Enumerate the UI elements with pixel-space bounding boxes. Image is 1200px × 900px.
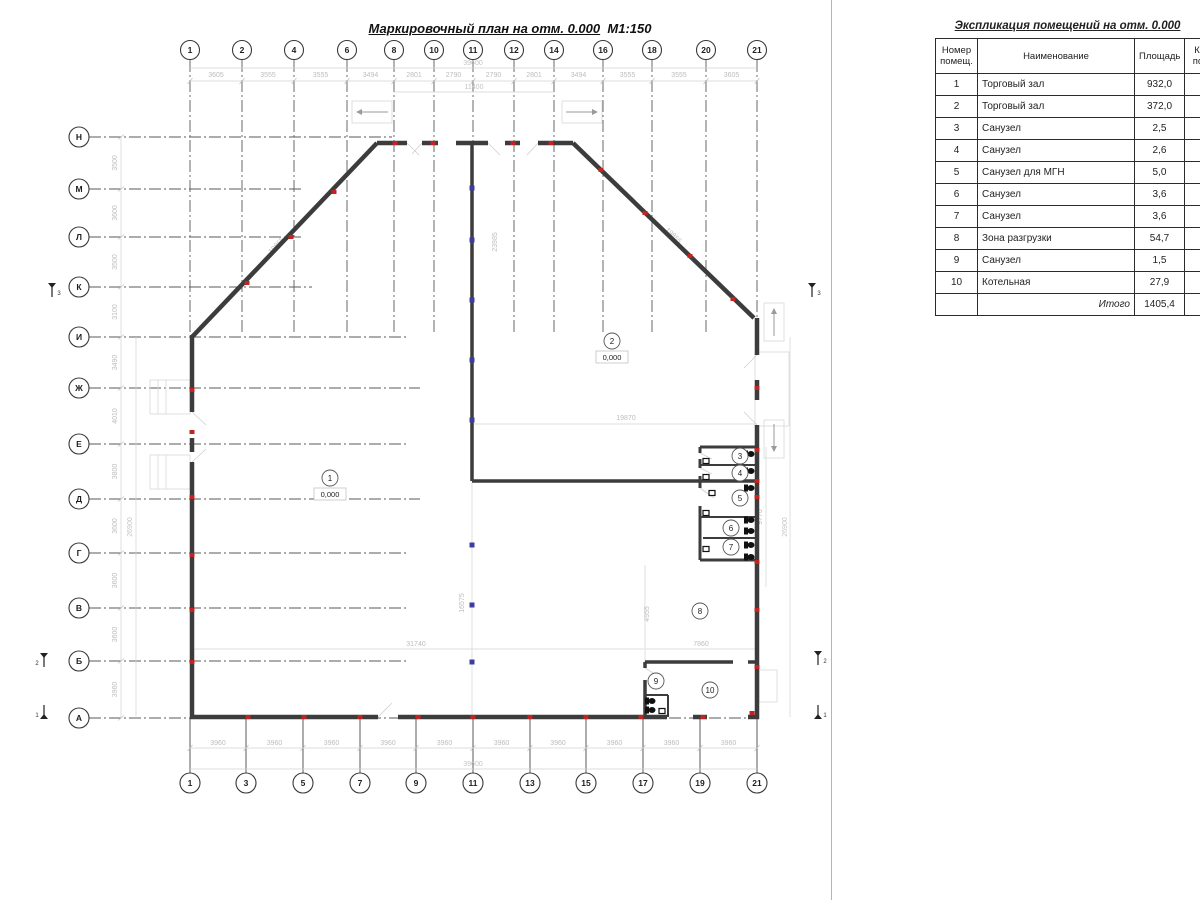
axis-label: 7 (358, 778, 363, 788)
wc-fixture (649, 698, 656, 704)
dimension-text: 3555 (620, 72, 636, 79)
axis-label: 13 (525, 778, 535, 788)
axis-label: 16 (598, 45, 608, 55)
room-number: 1 (328, 474, 333, 483)
total-value: 1405,4 (1135, 294, 1185, 316)
col-header-number: Номер помещ. (936, 39, 978, 74)
room-number-cell: 2 (936, 96, 978, 118)
column-marker (470, 238, 475, 243)
explication-table: Номер помещ. Наименование Площадь Кат. п… (935, 38, 1200, 316)
axis-label: 19 (695, 778, 705, 788)
dimension-text: 3800 (112, 464, 119, 480)
room-area-cell: 1,5 (1135, 250, 1185, 272)
wc-fixture (748, 485, 755, 491)
wc-fixture (744, 528, 748, 535)
col-header-category: Кат. пом. (1185, 39, 1200, 74)
red-marker (599, 168, 604, 172)
room-category-cell (1185, 250, 1200, 272)
section-mark-flag (40, 653, 48, 658)
door-swing (700, 488, 714, 498)
room-number-cell: 5 (936, 162, 978, 184)
total-empty-cell (936, 294, 978, 316)
axis-label: М (75, 184, 82, 194)
red-marker (688, 254, 693, 258)
door-swing (412, 143, 422, 154)
room-area-cell: 3,6 (1135, 206, 1185, 228)
red-marker (750, 711, 755, 715)
explication-title: Экспликация помещений на отм. 0.000 (935, 20, 1200, 32)
room-number-cell: 7 (936, 206, 978, 228)
axis-label: 17 (638, 778, 648, 788)
sink-fixture (659, 709, 665, 714)
axis-label: 15 (581, 778, 591, 788)
red-marker (393, 141, 398, 145)
room-name-cell: Котельная (978, 272, 1135, 294)
axis-label: Е (76, 439, 82, 449)
dimension-text: 3960 (324, 740, 340, 747)
room-area-cell: 932,0 (1135, 74, 1185, 96)
dimension-text: 3600 (112, 518, 119, 534)
room-area-cell: 3,6 (1135, 184, 1185, 206)
plan-title: Маркировочный план на отм. 0.000 М1:150 (320, 21, 700, 36)
room-number-cell: 9 (936, 250, 978, 272)
col-header-name: Наименование (978, 39, 1135, 74)
plan-scale-value: М1:150 (607, 21, 651, 36)
entrance-arrow-head (771, 308, 777, 314)
elevation-label: 0,000 (321, 490, 340, 499)
axis-label: Н (76, 132, 82, 142)
table-total-row: Итого1405,4 (936, 294, 1200, 316)
column-marker (470, 603, 475, 608)
room-number: 4 (738, 469, 743, 478)
dimension-text: 3500 (112, 254, 119, 270)
dimension-total-text: 26900 (782, 517, 789, 537)
section-mark-flag (40, 714, 48, 719)
section-mark-number: 3 (817, 291, 821, 297)
dimension-text: 3600 (112, 627, 119, 643)
wc-fixture (645, 698, 649, 705)
room-number-cell: 1 (936, 74, 978, 96)
room-number-cell: 3 (936, 118, 978, 140)
dimension-text: 4010 (112, 408, 119, 424)
door-swing (700, 468, 712, 474)
wc-fixture (748, 468, 755, 474)
section-mark-flag (808, 283, 816, 288)
room-category-cell (1185, 140, 1200, 162)
red-marker (302, 715, 307, 719)
room-name-cell: Санузел (978, 184, 1135, 206)
room-name-cell: Санузел (978, 206, 1135, 228)
red-marker (190, 430, 195, 434)
dimension-text: 3960 (210, 740, 226, 747)
table-row: 2Торговый зал372,0 (936, 96, 1200, 118)
dimension-text: 3960 (112, 682, 119, 698)
red-marker (511, 141, 516, 145)
wc-fixture (748, 528, 755, 534)
floor-plan-canvas: 3605355535553494280127902790280134943555… (0, 0, 900, 900)
dimension-text: 3600 (112, 205, 119, 221)
room-number-cell: 6 (936, 184, 978, 206)
red-marker (643, 211, 648, 215)
room-name-cell: Зона разгрузки (978, 228, 1135, 250)
wc-fixture (744, 554, 748, 561)
section-mark-number: 3 (57, 291, 61, 297)
red-marker (731, 297, 736, 301)
axis-label: Ж (74, 383, 83, 393)
section-mark-flag (48, 283, 56, 288)
column-marker (470, 418, 475, 423)
dimension-total-text: 39600 (463, 761, 483, 768)
axis-label: В (76, 603, 82, 613)
axis-label: 8 (392, 45, 397, 55)
room-number: 8 (698, 607, 703, 616)
room-category-cell (1185, 272, 1200, 294)
section-mark-number: 2 (35, 661, 39, 667)
room-area-cell: 2,6 (1135, 140, 1185, 162)
plan-title-text: Маркировочный план на отм. 0.000 (369, 21, 601, 36)
column-marker (470, 660, 475, 665)
room-category-cell (1185, 74, 1200, 96)
room-area-cell: 5,0 (1135, 162, 1185, 184)
wc-fixture (649, 707, 656, 713)
axis-label: 11 (469, 45, 478, 55)
table-row: 8Зона разгрузки54,7 (936, 228, 1200, 250)
room-area-cell: 27,9 (1135, 272, 1185, 294)
column-marker (470, 358, 475, 363)
red-marker (245, 281, 250, 285)
axis-label: 12 (509, 45, 519, 55)
room-area-cell: 54,7 (1135, 228, 1185, 250)
room-number: 9 (654, 677, 659, 686)
section-mark-flag (814, 651, 822, 656)
axis-label: 4 (292, 45, 297, 55)
axis-label: К (76, 282, 82, 292)
axis-label: 14 (549, 45, 559, 55)
room-name-cell: Торговый зал (978, 96, 1135, 118)
axis-label: 20 (701, 45, 711, 55)
dimension-text: 2801 (526, 72, 542, 79)
total-category-cell (1185, 294, 1200, 316)
red-marker (190, 495, 195, 499)
room-category-cell (1185, 228, 1200, 250)
table-row: 10Котельная27,9 (936, 272, 1200, 294)
room-category-cell (1185, 206, 1200, 228)
exterior-wall (192, 143, 377, 337)
dimension-text: 3555 (313, 72, 329, 79)
axis-label: Л (76, 232, 82, 242)
axis-label: Г (77, 548, 82, 558)
red-marker (289, 235, 294, 239)
room-category-cell (1185, 184, 1200, 206)
axis-label: 21 (752, 45, 762, 55)
red-marker (190, 553, 195, 557)
table-row: 7Санузел3,6 (936, 206, 1200, 228)
table-row: 3Санузел2,5 (936, 118, 1200, 140)
dimension-text: 3490 (112, 355, 119, 371)
entrance-arrow-head (356, 109, 362, 115)
red-marker (755, 560, 760, 564)
platform-outline (150, 455, 190, 489)
axis-label: А (76, 713, 82, 723)
red-marker (549, 141, 554, 145)
dimension-text: 31740 (406, 641, 426, 648)
room-number-cell: 10 (936, 272, 978, 294)
dimension-text: 3494 (571, 72, 587, 79)
room-category-cell (1185, 162, 1200, 184)
axis-label: 18 (647, 45, 657, 55)
red-marker (190, 608, 195, 612)
platform-outline (755, 352, 789, 426)
axis-label: 3 (244, 778, 249, 788)
room-number: 3 (738, 452, 743, 461)
red-marker (755, 386, 760, 390)
sheet-border-line (831, 0, 832, 900)
red-marker (755, 479, 760, 483)
axis-label: И (76, 332, 82, 342)
total-label: Итого (978, 294, 1135, 316)
room-name-cell: Санузел (978, 140, 1135, 162)
dimension-text: 23985 (492, 232, 499, 252)
wc-fixture (744, 485, 748, 492)
axis-label: 6 (345, 45, 350, 55)
door-swing (378, 703, 392, 717)
room-category-cell (1185, 96, 1200, 118)
dimension-text: 3960 (550, 740, 566, 747)
room-name-cell: Санузел для МГН (978, 162, 1135, 184)
red-marker (755, 608, 760, 612)
red-marker (528, 715, 533, 719)
red-marker (358, 715, 363, 719)
red-marker (755, 495, 760, 499)
red-marker (416, 715, 421, 719)
sink-fixture (703, 475, 709, 480)
room-number: 2 (610, 337, 615, 346)
sink-fixture (703, 459, 709, 464)
red-marker (246, 715, 251, 719)
red-marker (190, 388, 195, 392)
axis-label: 2 (240, 45, 245, 55)
table-row: 9Санузел1,5 (936, 250, 1200, 272)
room-name-cell: Санузел (978, 250, 1135, 272)
table-row: 4Санузел2,6 (936, 140, 1200, 162)
room-name-cell: Санузел (978, 118, 1135, 140)
dimension-text: 3605 (724, 72, 740, 79)
room-number-cell: 8 (936, 228, 978, 250)
red-marker (639, 715, 644, 719)
dimension-text: 2801 (406, 72, 422, 79)
elevation-label: 0,000 (603, 353, 622, 362)
red-marker (190, 660, 195, 664)
dimension-total-text: 39600 (463, 60, 483, 67)
room-area-cell: 2,5 (1135, 118, 1185, 140)
table-row: 1Торговый зал932,0 (936, 74, 1200, 96)
red-marker (584, 715, 589, 719)
wc-fixture (748, 517, 755, 523)
dimension-text: 11400 (465, 84, 484, 91)
dimension-text: 3555 (671, 72, 687, 79)
axis-label: Д (76, 494, 82, 504)
wc-fixture (748, 542, 755, 548)
red-marker (471, 715, 476, 719)
room-number: 5 (738, 494, 743, 503)
axis-label: 1 (188, 45, 193, 55)
dimension-text: 3605 (208, 72, 224, 79)
wc-fixture (748, 554, 755, 560)
door-swing (488, 143, 500, 155)
red-marker (332, 190, 337, 194)
dimension-text: 3100 (112, 304, 119, 320)
section-mark-number: 1 (35, 713, 39, 719)
dimension-text: 3494 (363, 72, 379, 79)
dimension-text: 7860 (693, 641, 709, 648)
door-swing (192, 412, 206, 425)
room-number: 10 (706, 686, 715, 695)
table-header-row: Номер помещ. Наименование Площадь Кат. п… (936, 39, 1200, 74)
dimension-text: 3600 (112, 573, 119, 589)
red-marker (701, 715, 706, 719)
room-number: 6 (729, 524, 734, 533)
dimension-text: 3500 (112, 155, 119, 171)
sink-fixture (703, 511, 709, 516)
axis-label: 10 (429, 45, 439, 55)
dimension-text: 16575 (459, 593, 466, 613)
explication-block: Экспликация помещений на отм. 0.000 Номе… (935, 20, 1200, 316)
table-row: 6Санузел3,6 (936, 184, 1200, 206)
platform-outline (150, 380, 190, 414)
dimension-text: 2790 (486, 72, 502, 79)
dimension-total-text: 26900 (127, 517, 134, 537)
entrance-arrow-head (592, 109, 598, 115)
col-header-area: Площадь (1135, 39, 1185, 74)
table-row: 5Санузел для МГН5,0 (936, 162, 1200, 184)
axis-label: 1 (188, 778, 193, 788)
column-marker (470, 298, 475, 303)
wc-fixture (744, 542, 748, 549)
entrance-arrow-head (771, 446, 777, 452)
axis-label: 21 (752, 778, 762, 788)
room-area-cell: 372,0 (1135, 96, 1185, 118)
column-marker (470, 186, 475, 191)
wc-fixture (744, 517, 748, 524)
platform-outline (759, 670, 777, 702)
room-number: 7 (729, 543, 734, 552)
dimension-text: 3960 (721, 740, 737, 747)
sink-fixture (703, 547, 709, 552)
dimension-text: 3960 (494, 740, 510, 747)
axis-label: 9 (414, 778, 419, 788)
dimension-text: 3960 (380, 740, 396, 747)
axis-label: 5 (301, 778, 306, 788)
axis-label: 11 (469, 778, 478, 788)
section-mark-number: 2 (823, 659, 827, 665)
column-marker (470, 543, 475, 548)
room-number-cell: 4 (936, 140, 978, 162)
dimension-text: 19870 (616, 415, 636, 422)
dimension-text: 2790 (446, 72, 462, 79)
red-marker (755, 665, 760, 669)
dimension-text: 3960 (437, 740, 453, 747)
wc-fixture (748, 451, 755, 457)
door-swing (527, 143, 538, 155)
dimension-text: 3960 (607, 740, 623, 747)
dimension-text: 3960 (267, 740, 283, 747)
red-marker (431, 141, 436, 145)
room-name-cell: Торговый зал (978, 74, 1135, 96)
axis-label: Б (76, 656, 82, 666)
section-mark-number: 1 (823, 713, 827, 719)
dimension-text: 3960 (664, 740, 680, 747)
wc-fixture (645, 707, 649, 714)
dimension-text: 3555 (260, 72, 276, 79)
section-mark-flag (814, 714, 822, 719)
red-marker (755, 448, 760, 452)
room-category-cell (1185, 118, 1200, 140)
